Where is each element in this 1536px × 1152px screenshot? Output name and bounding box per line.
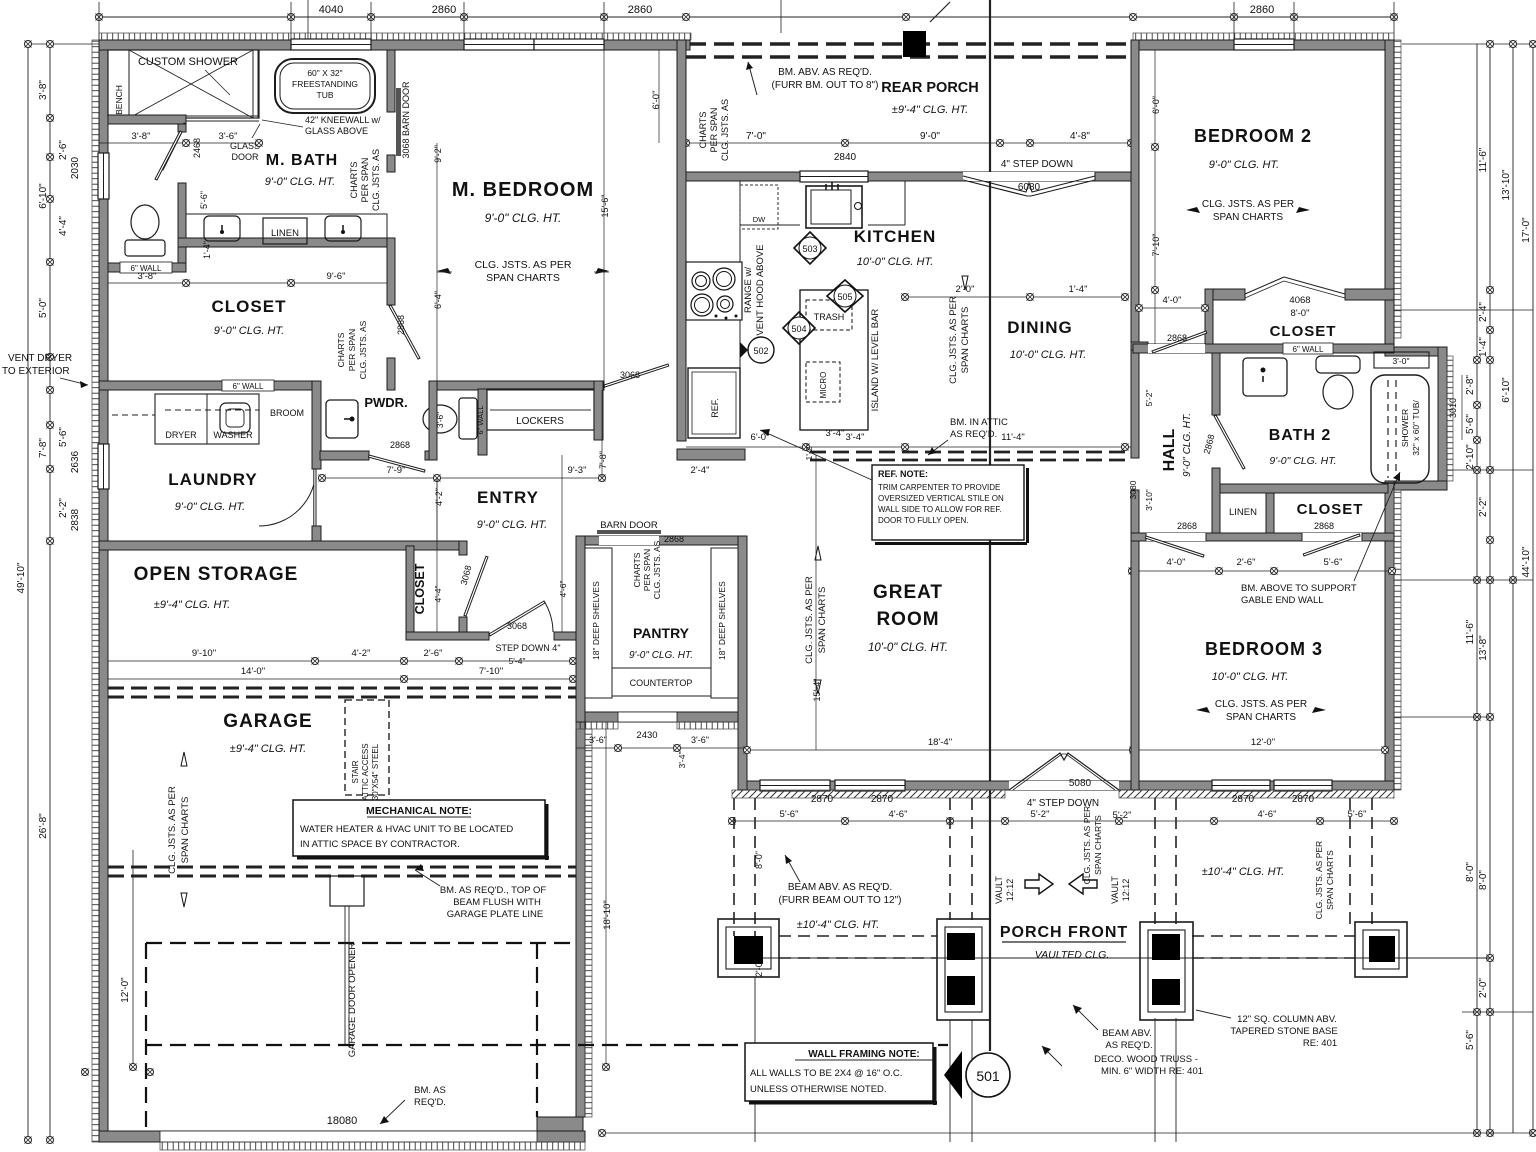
svg-text:505: 505 — [837, 292, 852, 302]
svg-text:CLG. JSTS. AS PER: CLG. JSTS. AS PER — [1314, 841, 1324, 919]
svg-text:PORCH FRONT: PORCH FRONT — [1000, 924, 1128, 941]
svg-text:REAR PORCH: REAR PORCH — [881, 80, 978, 96]
svg-text:CLG. JSTS. AS: CLG. JSTS. AS — [720, 99, 730, 161]
svg-text:5'-2": 5'-2" — [1113, 810, 1132, 821]
svg-text:3'-6": 3'-6" — [589, 735, 607, 745]
svg-text:OPEN STORAGE: OPEN STORAGE — [134, 564, 299, 585]
svg-text:WALL SIDE TO ALLOW FOR REF.: WALL SIDE TO ALLOW FOR REF. — [878, 505, 1002, 514]
svg-text:ALL WALLS TO BE 2X4 @ 16" O.C.: ALL WALLS TO BE 2X4 @ 16" O.C. — [750, 1068, 902, 1079]
svg-text:7'-0": 7'-0" — [746, 131, 766, 142]
svg-text:±9'-4" CLG. HT.: ±9'-4" CLG. HT. — [154, 599, 230, 611]
svg-text:FREESTANDING: FREESTANDING — [292, 79, 358, 89]
svg-text:17'-0": 17'-0" — [1521, 217, 1532, 243]
svg-text:ATTIC ACCESS: ATTIC ACCESS — [361, 743, 370, 800]
svg-text:BM. AS REQ'D., TOP OF: BM. AS REQ'D., TOP OF — [440, 885, 547, 896]
svg-text:PWDR.: PWDR. — [364, 395, 407, 410]
svg-text:MECHANICAL NOTE:: MECHANICAL NOTE: — [366, 805, 472, 817]
svg-text:2'-0": 2'-0" — [754, 959, 764, 977]
svg-text:9'-0" CLG. HT.: 9'-0" CLG. HT. — [214, 325, 284, 337]
svg-text:1'-4": 1'-4" — [1478, 337, 1489, 357]
svg-text:3080: 3080 — [1128, 480, 1138, 499]
svg-text:8'-0": 8'-0" — [754, 851, 764, 869]
svg-text:SHOWER: SHOWER — [1400, 409, 1410, 447]
svg-text:UNLESS OTHERWISE NOTED.: UNLESS OTHERWISE NOTED. — [750, 1084, 887, 1095]
svg-text:3068 BARN DOOR: 3068 BARN DOOR — [401, 81, 411, 159]
svg-text:1'-4": 1'-4" — [1069, 284, 1088, 295]
svg-text:2'-4": 2'-4" — [691, 465, 710, 476]
svg-text:9'-0": 9'-0" — [920, 131, 940, 142]
svg-text:CHARTS: CHARTS — [336, 332, 346, 367]
svg-text:5'-6": 5'-6" — [1465, 414, 1476, 434]
svg-text:4'-6": 4'-6" — [558, 581, 568, 598]
svg-text:WALL FRAMING NOTE:: WALL FRAMING NOTE: — [808, 1049, 919, 1060]
svg-text:TRASH: TRASH — [814, 312, 845, 322]
svg-text:CLG. JSTS. AS PER: CLG. JSTS. AS PER — [804, 576, 815, 664]
svg-text:2840: 2840 — [834, 152, 857, 163]
svg-text:2'-6": 2'-6" — [424, 648, 443, 659]
svg-text:2468: 2468 — [192, 138, 202, 158]
svg-text:BM. ABV. AS REQ'D.: BM. ABV. AS REQ'D. — [778, 67, 872, 78]
svg-text:±10'-4" CLG. HT.: ±10'-4" CLG. HT. — [797, 919, 880, 931]
svg-text:6'-10": 6'-10" — [1501, 377, 1512, 403]
svg-text:VAULTED CLG.: VAULTED CLG. — [1035, 949, 1110, 961]
svg-text:9'-6": 9'-6" — [327, 271, 346, 282]
svg-text:IN ATTIC SPACE BY CONTRACTOR.: IN ATTIC SPACE BY CONTRACTOR. — [300, 839, 460, 850]
svg-text:4'-2": 4'-2" — [352, 648, 371, 659]
svg-text:TRIM CARPENTER TO PROVIDE: TRIM CARPENTER TO PROVIDE — [878, 483, 1000, 492]
svg-text:2636: 2636 — [70, 450, 81, 473]
svg-text:BM. ABOVE TO SUPPORT: BM. ABOVE TO SUPPORT — [1241, 583, 1357, 594]
svg-text:6" WALL: 6" WALL — [1293, 345, 1325, 354]
svg-text:60" X 32": 60" X 32" — [307, 68, 342, 78]
svg-text:4'-4": 4'-4" — [433, 586, 443, 603]
svg-text:9'-0" CLG. HT.: 9'-0" CLG. HT. — [629, 650, 693, 661]
svg-text:PER SPAN: PER SPAN — [347, 329, 357, 371]
svg-text:CLG. JSTS. AS PER: CLG. JSTS. AS PER — [948, 296, 959, 384]
svg-text:3'-0": 3'-0" — [1393, 356, 1410, 366]
svg-text:VENT HOOD ABOVE: VENT HOOD ABOVE — [755, 244, 766, 335]
svg-text:18'-4": 18'-4" — [928, 737, 952, 748]
svg-text:CLG. JSTS. AS PER: CLG. JSTS. AS PER — [1215, 699, 1307, 710]
svg-text:2868: 2868 — [396, 315, 406, 335]
svg-text:2868: 2868 — [664, 534, 684, 544]
svg-text:5'-6": 5'-6" — [58, 427, 69, 447]
svg-text:CLG. JSTS. AS: CLG. JSTS. AS — [652, 540, 662, 599]
svg-text:2870: 2870 — [871, 794, 894, 805]
svg-text:(FURR BEAM OUT TO 12"): (FURR BEAM OUT TO 12") — [778, 895, 901, 906]
svg-text:RANGE w/: RANGE w/ — [743, 267, 754, 313]
svg-text:BATH 2: BATH 2 — [1269, 427, 1332, 444]
svg-text:CLOSET: CLOSET — [1270, 323, 1337, 340]
svg-text:2'-6": 2'-6" — [1237, 557, 1256, 568]
svg-text:GARAGE DOOR OPENER: GARAGE DOOR OPENER — [347, 943, 358, 1058]
svg-text:6'-0": 6'-0" — [751, 432, 770, 443]
svg-text:7'-9": 7'-9" — [387, 465, 406, 476]
svg-text:VAULT: VAULT — [1110, 876, 1120, 904]
svg-text:CLG. JSTS. AS PER: CLG. JSTS. AS PER — [167, 786, 178, 874]
svg-text:7'-8": 7'-8" — [38, 438, 49, 458]
svg-text:26'-8": 26'-8" — [38, 813, 49, 839]
svg-text:DOOR: DOOR — [232, 152, 260, 162]
svg-text:GLASS ABOVE: GLASS ABOVE — [305, 126, 368, 136]
svg-text:2838: 2838 — [70, 508, 81, 531]
svg-text:10'-0" CLG. HT.: 10'-0" CLG. HT. — [857, 256, 934, 268]
svg-text:2868: 2868 — [390, 440, 410, 450]
svg-text:9'-0" CLG. HT.: 9'-0" CLG. HT. — [265, 176, 335, 188]
svg-text:STEP DOWN 4": STEP DOWN 4" — [495, 643, 560, 653]
svg-text:6" WALL: 6" WALL — [233, 382, 265, 391]
svg-text:8'-0": 8'-0" — [1465, 862, 1476, 882]
svg-text:BEAM ABV.: BEAM ABV. — [1102, 1028, 1152, 1039]
svg-text:BEDROOM 3: BEDROOM 3 — [1205, 639, 1323, 659]
svg-text:HALL: HALL — [1161, 428, 1178, 471]
svg-text:REF.: REF. — [710, 398, 720, 418]
svg-text:12:12: 12:12 — [1005, 879, 1015, 902]
svg-text:3068: 3068 — [507, 621, 527, 631]
svg-text:3'-10": 3'-10" — [1144, 489, 1154, 511]
svg-text:BARN DOOR: BARN DOOR — [600, 520, 658, 531]
svg-text:6" WALL: 6" WALL — [476, 405, 485, 434]
svg-text:9'-0" CLG. HT.: 9'-0" CLG. HT. — [1182, 413, 1193, 477]
svg-text:2'-6": 2'-6" — [58, 140, 69, 160]
svg-text:44'-10": 44'-10" — [1521, 546, 1532, 577]
svg-text:CLG. JSTS. AS: CLG. JSTS. AS — [371, 149, 381, 211]
svg-text:4" STEP DOWN: 4" STEP DOWN — [1001, 159, 1073, 170]
svg-text:18" DEEP SHELVES: 18" DEEP SHELVES — [591, 581, 601, 660]
svg-text:5080: 5080 — [1069, 778, 1092, 789]
svg-text:9'-0" CLG. HT.: 9'-0" CLG. HT. — [485, 211, 562, 225]
svg-text:CLOSET: CLOSET — [1297, 501, 1364, 518]
svg-text:2'-2": 2'-2" — [58, 498, 69, 518]
svg-text:2868: 2868 — [1167, 333, 1187, 343]
svg-text:2'-0": 2'-0" — [1478, 978, 1489, 998]
svg-text:15'-4": 15'-4" — [812, 679, 822, 702]
svg-text:2'-8": 2'-8" — [1465, 375, 1476, 395]
svg-text:CLOSET: CLOSET — [413, 563, 427, 614]
svg-text:REQ'D.: REQ'D. — [414, 1097, 446, 1108]
svg-text:BEDROOM 2: BEDROOM 2 — [1194, 126, 1312, 146]
svg-text:4'-0": 4'-0" — [1163, 295, 1182, 306]
svg-text:42" KNEEWALL w/: 42" KNEEWALL w/ — [305, 115, 381, 125]
svg-text:CUSTOM SHOWER: CUSTOM SHOWER — [138, 56, 238, 68]
svg-text:2870: 2870 — [811, 794, 834, 805]
svg-text:MIN. 6" WIDTH RE: 401: MIN. 6" WIDTH RE: 401 — [1101, 1066, 1203, 1077]
svg-text:7'-8": 7'-8" — [598, 451, 608, 469]
svg-text:±9'-4" CLG. HT.: ±9'-4" CLG. HT. — [230, 743, 306, 755]
svg-text:2860: 2860 — [628, 4, 652, 16]
svg-text:12'-0": 12'-0" — [1251, 737, 1275, 748]
svg-text:4'-8": 4'-8" — [1070, 131, 1090, 142]
svg-text:3'-8": 3'-8" — [138, 271, 157, 282]
svg-text:3'-4": 3'-4" — [826, 428, 845, 439]
svg-text:9'-0" CLG. HT.: 9'-0" CLG. HT. — [1269, 455, 1336, 467]
svg-text:49'-10": 49'-10" — [16, 562, 27, 593]
svg-text:TUB: TUB — [317, 90, 334, 100]
svg-text:12'-0": 12'-0" — [120, 977, 131, 1003]
svg-text:BM. AS: BM. AS — [414, 1085, 446, 1096]
svg-text:6'-4": 6'-4" — [433, 291, 443, 309]
svg-text:5'-6": 5'-6" — [780, 809, 799, 820]
svg-text:11'-6": 11'-6" — [1478, 147, 1489, 172]
svg-text:LAUNDRY: LAUNDRY — [168, 470, 257, 489]
svg-text:DW: DW — [753, 215, 766, 224]
svg-text:5'-6": 5'-6" — [1324, 557, 1343, 568]
svg-text:VAULT: VAULT — [994, 876, 1004, 904]
svg-text:CLOSET: CLOSET — [212, 297, 287, 316]
svg-text:PER SPAN: PER SPAN — [709, 108, 719, 153]
svg-text:5'-6": 5'-6" — [199, 191, 209, 209]
svg-text:7'-10": 7'-10" — [479, 666, 503, 677]
svg-text:SPAN CHARTS: SPAN CHARTS — [1325, 850, 1335, 910]
svg-text:5'-2": 5'-2" — [1144, 390, 1154, 407]
svg-text:±10'-4" CLG. HT.: ±10'-4" CLG. HT. — [1202, 866, 1285, 878]
svg-text:GREAT: GREAT — [873, 582, 943, 603]
svg-text:2'-10": 2'-10" — [1465, 444, 1476, 470]
svg-text:13'-8": 13'-8" — [1478, 635, 1489, 661]
svg-text:LINEN: LINEN — [1229, 507, 1257, 518]
svg-text:OVERSIZED VERTICAL STILE ON: OVERSIZED VERTICAL STILE ON — [878, 494, 1004, 503]
svg-text:MICRO: MICRO — [819, 372, 828, 399]
svg-text:DRYER: DRYER — [165, 430, 197, 440]
svg-text:14'-0": 14'-0" — [241, 666, 265, 677]
svg-text:CHARTS: CHARTS — [698, 112, 708, 149]
svg-text:SPAN CHARTS: SPAN CHARTS — [1093, 815, 1103, 875]
svg-text:5'-6": 5'-6" — [1465, 1030, 1476, 1050]
svg-text:2430: 2430 — [636, 730, 657, 741]
svg-text:5'-2": 5'-2" — [1031, 809, 1050, 820]
svg-text:502: 502 — [753, 346, 768, 356]
svg-text:6080: 6080 — [1018, 182, 1041, 193]
svg-text:6'-10": 6'-10" — [38, 183, 49, 209]
svg-text:M. BEDROOM: M. BEDROOM — [452, 179, 594, 201]
svg-text:6'-0": 6'-0" — [651, 91, 662, 110]
svg-text:±9'-4" CLG. HT.: ±9'-4" CLG. HT. — [892, 104, 968, 116]
svg-text:2030: 2030 — [70, 156, 81, 179]
svg-text:4'-4": 4'-4" — [58, 216, 69, 236]
svg-text:LOCKERS: LOCKERS — [516, 416, 564, 427]
svg-text:10'-0" CLG. HT.: 10'-0" CLG. HT. — [1212, 671, 1289, 683]
svg-text:SPAN CHARTS: SPAN CHARTS — [180, 797, 191, 864]
svg-text:BM. IN ATTIC: BM. IN ATTIC — [950, 417, 1008, 428]
svg-text:PANTRY: PANTRY — [633, 625, 690, 641]
svg-text:REF. NOTE:: REF. NOTE: — [878, 469, 928, 479]
svg-text:CLG. JSTS. AS PER: CLG. JSTS. AS PER — [1082, 806, 1092, 884]
svg-text:SPAN CHARTS: SPAN CHARTS — [1213, 212, 1284, 223]
svg-text:CLG. JSTS. AS PER: CLG. JSTS. AS PER — [1202, 199, 1294, 210]
svg-text:18080: 18080 — [327, 1115, 358, 1127]
svg-text:2860: 2860 — [1250, 4, 1274, 16]
svg-text:9'-0" CLG. HT.: 9'-0" CLG. HT. — [175, 501, 245, 513]
svg-text:AS REQ'D.: AS REQ'D. — [950, 429, 997, 440]
svg-text:SPAN CHARTS: SPAN CHARTS — [486, 272, 560, 284]
svg-text:CLG. JSTS. AS: CLG. JSTS. AS — [358, 320, 368, 379]
svg-text:STAIR: STAIR — [351, 760, 360, 783]
svg-text:(FURR BM. OUT TO 8"): (FURR BM. OUT TO 8") — [772, 80, 879, 91]
svg-text:13'-10": 13'-10" — [1501, 169, 1512, 200]
svg-text:GABLE END WALL: GABLE END WALL — [1241, 595, 1324, 606]
svg-text:11'-6": 11'-6" — [1465, 619, 1476, 644]
svg-text:WATER HEATER & HVAC UNIT TO BE: WATER HEATER & HVAC UNIT TO BE LOCATED — [300, 824, 513, 835]
svg-text:BENCH: BENCH — [114, 85, 124, 115]
svg-text:DINING: DINING — [1007, 318, 1073, 337]
svg-text:ISLAND W/ LEVEL BAR: ISLAND W/ LEVEL BAR — [870, 309, 881, 412]
svg-text:3'-8": 3'-8" — [38, 80, 49, 100]
svg-text:3'-4": 3'-4" — [677, 752, 687, 769]
svg-text:VENT DRYER: VENT DRYER — [8, 353, 72, 364]
svg-text:TO EXTERIOR: TO EXTERIOR — [2, 366, 70, 377]
svg-text:4'-2": 4'-2" — [434, 488, 444, 506]
svg-text:9'-0" CLG. HT.: 9'-0" CLG. HT. — [1209, 159, 1279, 171]
svg-text:1'-4": 1'-4" — [202, 241, 212, 259]
svg-text:10'-0" CLG. HT.: 10'-0" CLG. HT. — [868, 642, 948, 654]
svg-text:3'-4": 3'-4" — [846, 432, 865, 443]
svg-text:RE: 401: RE: 401 — [1303, 1038, 1337, 1049]
svg-text:PER SPAN: PER SPAN — [642, 549, 652, 591]
svg-text:501: 501 — [976, 1068, 1000, 1084]
svg-text:504: 504 — [791, 324, 806, 334]
svg-text:32" x 60" TUB/: 32" x 60" TUB/ — [1411, 400, 1421, 456]
svg-text:18" DEEP SHELVES: 18" DEEP SHELVES — [717, 581, 727, 660]
svg-text:2860: 2860 — [432, 4, 456, 16]
svg-text:SPAN CHARTS: SPAN CHARTS — [817, 587, 828, 654]
svg-text:4'-0": 4'-0" — [1167, 557, 1186, 568]
svg-text:BEAM FLUSH WITH: BEAM FLUSH WITH — [453, 897, 541, 908]
svg-text:2868: 2868 — [1177, 521, 1197, 531]
svg-text:TAPERED STONE BASE: TAPERED STONE BASE — [1230, 1026, 1337, 1037]
svg-text:SPAN CHARTS: SPAN CHARTS — [1226, 712, 1297, 723]
svg-text:2'-2": 2'-2" — [1478, 497, 1489, 517]
svg-text:7'-10": 7'-10" — [1151, 234, 1161, 257]
svg-text:9'-3": 9'-3" — [568, 465, 587, 476]
svg-text:DECO. WOOD TRUSS -: DECO. WOOD TRUSS - — [1094, 1054, 1198, 1065]
svg-text:CHARTS: CHARTS — [349, 162, 359, 199]
svg-text:15'-6": 15'-6" — [600, 195, 610, 218]
svg-text:2868: 2868 — [1314, 521, 1334, 531]
svg-text:9'-2": 9'-2" — [433, 145, 443, 163]
svg-text:PER SPAN: PER SPAN — [360, 158, 370, 203]
svg-text:8'-0": 8'-0" — [1291, 308, 1310, 319]
svg-text:2'-4": 2'-4" — [1478, 302, 1489, 322]
svg-text:2870: 2870 — [1232, 794, 1255, 805]
svg-text:9'-0" CLG. HT.: 9'-0" CLG. HT. — [477, 519, 547, 531]
svg-text:18'-10": 18'-10" — [602, 900, 613, 929]
svg-text:BROOM: BROOM — [270, 408, 304, 418]
svg-text:5'-0": 5'-0" — [38, 298, 49, 318]
svg-text:3068: 3068 — [620, 370, 640, 380]
svg-text:10'-0" CLG. HT.: 10'-0" CLG. HT. — [1010, 349, 1087, 361]
svg-text:9'-10": 9'-10" — [192, 648, 216, 659]
svg-text:DOOR TO FULLY OPEN.: DOOR TO FULLY OPEN. — [878, 516, 969, 525]
svg-text:12" SQ. COLUMN ABV.: 12" SQ. COLUMN ABV. — [1237, 1014, 1337, 1025]
svg-text:4'-6": 4'-6" — [889, 809, 908, 820]
svg-text:GARAGE PLATE LINE: GARAGE PLATE LINE — [447, 909, 543, 920]
svg-text:GARAGE: GARAGE — [223, 711, 312, 732]
svg-text:KITCHEN: KITCHEN — [854, 227, 937, 246]
svg-text:12:12: 12:12 — [1121, 879, 1131, 902]
svg-text:4040: 4040 — [319, 4, 343, 16]
svg-text:30"X54" STEEL: 30"X54" STEEL — [371, 743, 380, 800]
svg-text:3'-6": 3'-6" — [691, 735, 709, 745]
svg-text:SPAN CHARTS: SPAN CHARTS — [960, 307, 971, 374]
svg-text:AS REQ'D.: AS REQ'D. — [1105, 1040, 1152, 1051]
svg-text:3'-8": 3'-8" — [132, 131, 151, 142]
svg-text:COUNTERTOP: COUNTERTOP — [630, 678, 693, 688]
svg-text:4068: 4068 — [1289, 295, 1310, 306]
svg-text:503: 503 — [802, 244, 817, 254]
svg-text:11'-4": 11'-4" — [1001, 432, 1025, 443]
svg-text:CLG. JSTS. AS PER: CLG. JSTS. AS PER — [475, 259, 572, 271]
svg-text:CHARTS: CHARTS — [632, 552, 642, 587]
svg-text:8'-0": 8'-0" — [1478, 870, 1489, 890]
svg-text:6'-0": 6'-0" — [1151, 96, 1161, 114]
svg-text:3'-6": 3'-6" — [219, 131, 238, 142]
svg-text:4'-6": 4'-6" — [1258, 809, 1277, 820]
svg-text:M. BATH: M. BATH — [266, 152, 338, 169]
svg-text:LINEN: LINEN — [271, 228, 299, 239]
svg-text:2870: 2870 — [1292, 794, 1315, 805]
svg-text:ROOM: ROOM — [876, 609, 939, 630]
svg-text:BEAM ABV. AS REQ'D.: BEAM ABV. AS REQ'D. — [788, 882, 892, 893]
svg-text:ENTRY: ENTRY — [477, 488, 539, 507]
